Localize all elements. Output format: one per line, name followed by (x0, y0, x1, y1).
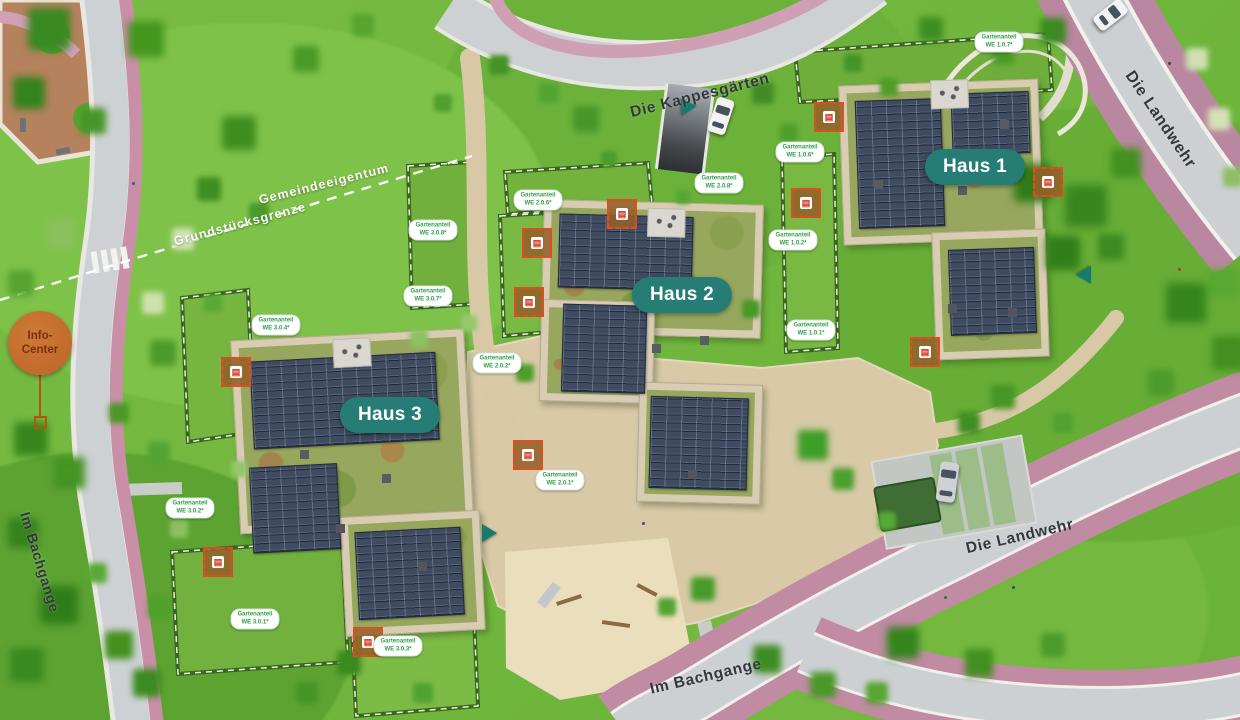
planting-marker-icon[interactable]: ▤ (607, 199, 637, 229)
roof-terrace (332, 337, 371, 368)
garden-tag[interactable]: GartenanteilWE 2.0.2* (472, 353, 521, 374)
garden-tag[interactable]: GartenanteilWE 3.0.2* (165, 498, 214, 519)
building-haus-1 (838, 79, 1050, 366)
info-center-location (34, 416, 47, 429)
roof-terrace (647, 208, 686, 238)
solar-panels (948, 247, 1037, 336)
planting-marker-icon[interactable]: ▤ (1033, 167, 1063, 197)
garden-tag[interactable]: GartenanteilWE 3.0.7* (403, 286, 452, 307)
solar-panels (561, 304, 647, 394)
info-center-line1: Info- (28, 329, 53, 343)
planting-marker-icon[interactable]: ▤ (514, 287, 544, 317)
planting-marker-icon[interactable]: ▤ (513, 440, 543, 470)
planting-marker-icon[interactable]: ▤ (522, 228, 552, 258)
grid-icon: ▤ (800, 197, 812, 209)
garden-tag[interactable]: GartenanteilWE 2.0.1* (535, 470, 584, 491)
garden-tag[interactable]: GartenanteilWE 1.0.6* (775, 142, 824, 163)
grid-icon: ▤ (919, 346, 931, 358)
garden-tag[interactable]: GartenanteilWE 1.0.1* (786, 320, 835, 341)
garden-tag[interactable]: GartenanteilWE 3.0.1* (230, 609, 279, 630)
grid-icon: ▤ (362, 636, 374, 648)
info-center-badge[interactable]: Info- Center (8, 311, 72, 375)
building-label-haus-2[interactable]: Haus 2 (632, 277, 732, 313)
garden-tag[interactable]: GartenanteilWE 3.0.4* (251, 315, 300, 336)
grid-icon: ▤ (522, 449, 534, 461)
grid-icon: ▤ (1042, 176, 1054, 188)
grid-icon: ▤ (616, 208, 628, 220)
building-haus-2 (536, 199, 774, 507)
info-center-pointer (39, 374, 41, 418)
solar-panels (354, 527, 464, 620)
grid-icon: ▤ (823, 111, 835, 123)
garden-tag[interactable]: GartenanteilWE 3.0.8* (408, 220, 457, 241)
grid-icon: ▤ (230, 366, 242, 378)
direction-arrow-icon (482, 524, 497, 542)
grid-icon: ▤ (531, 237, 543, 249)
grid-icon: ▤ (523, 296, 535, 308)
planting-marker-icon[interactable]: ▤ (910, 337, 940, 367)
garden-tag[interactable]: GartenanteilWE 2.0.6* (513, 190, 562, 211)
site-plan: ▤ ▤ ▤ ▤ ▤ ▤ ▤ ▤ ▤ ▤ ▤ Die Kappesgärten D… (0, 0, 1240, 720)
planting-marker-icon[interactable]: ▤ (814, 102, 844, 132)
garden-tag[interactable]: GartenanteilWE 1.0.2* (768, 230, 817, 251)
direction-arrow-icon (1076, 266, 1091, 284)
solar-panels (648, 396, 748, 491)
planting-marker-icon[interactable]: ▤ (221, 357, 251, 387)
building-haus-3 (230, 328, 488, 644)
building-label-haus-1[interactable]: Haus 1 (925, 149, 1025, 185)
garden-tag[interactable]: GartenanteilWE 2.0.8* (694, 173, 743, 194)
roof-terrace (930, 79, 969, 109)
grid-icon: ▤ (212, 556, 224, 568)
garden-tag[interactable]: GartenanteilWE 3.0.3* (373, 636, 422, 657)
building-label-haus-3[interactable]: Haus 3 (340, 397, 440, 433)
solar-panels (249, 463, 341, 553)
planting-marker-icon[interactable]: ▤ (203, 547, 233, 577)
planting-marker-icon[interactable]: ▤ (791, 188, 821, 218)
info-center-line2: Center (22, 343, 58, 357)
garden-tag[interactable]: GartenanteilWE 1.0.7* (974, 32, 1023, 53)
